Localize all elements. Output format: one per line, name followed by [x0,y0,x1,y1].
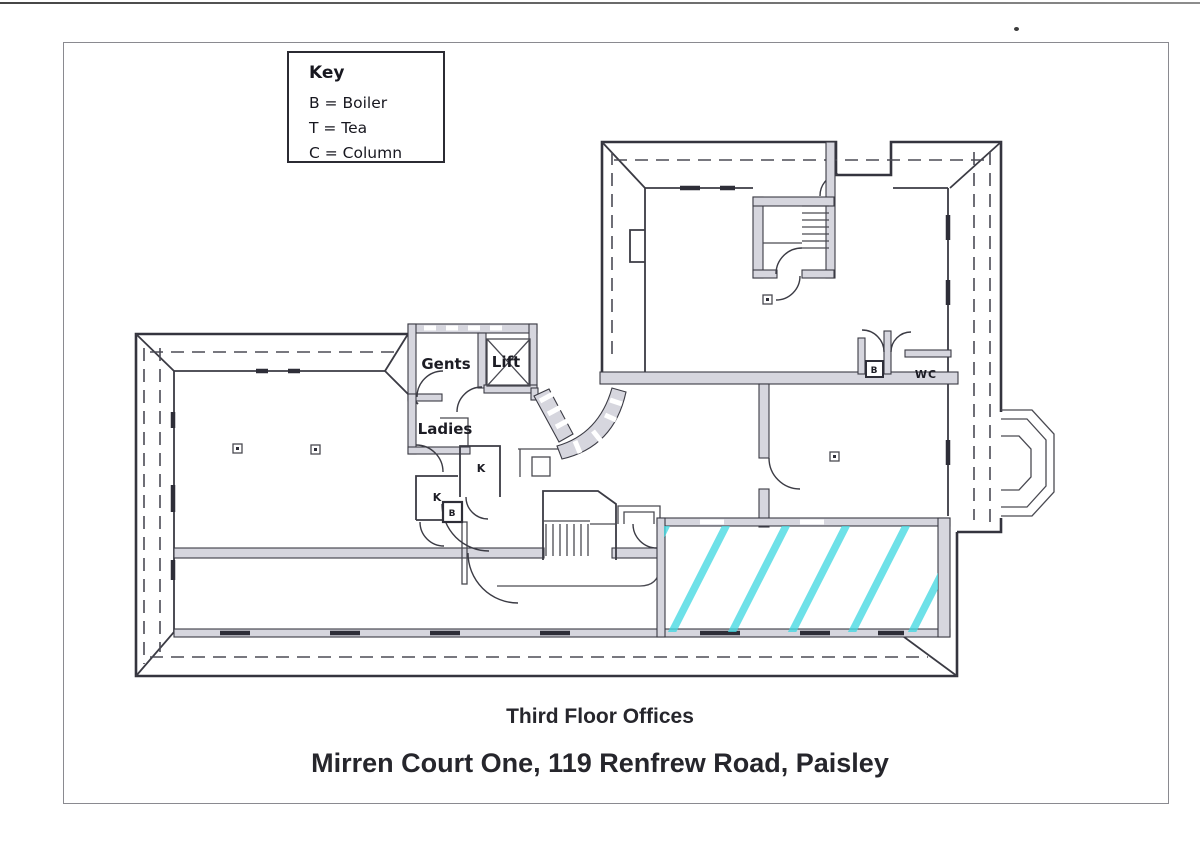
room-label-k2: K [433,491,442,504]
stair-right-block [753,142,835,300]
vestibule [618,506,660,524]
stair-left-wing [543,491,616,560]
drawing-title-floor: Third Floor Offices [0,705,1200,729]
bay-window [1001,410,1054,516]
scanned-floor-plan-page: Key B = Boiler T = Tea C = Column [0,0,1200,849]
room-label-ladies: Ladies [418,420,473,438]
drawing-title-address: Mirren Court One, 119 Renfrew Road, Pais… [0,748,1200,779]
room-label-lift: Lift [492,353,520,371]
room-label-k1: K [477,462,486,475]
left-wing [136,334,957,676]
label-boiler-core: B [449,509,456,519]
label-boiler-wc: B [871,366,878,376]
room-label-wc: WC [915,368,937,381]
room-label-gents: Gents [421,355,470,373]
column-marker [233,444,320,454]
right-block: B WC [600,142,1054,532]
